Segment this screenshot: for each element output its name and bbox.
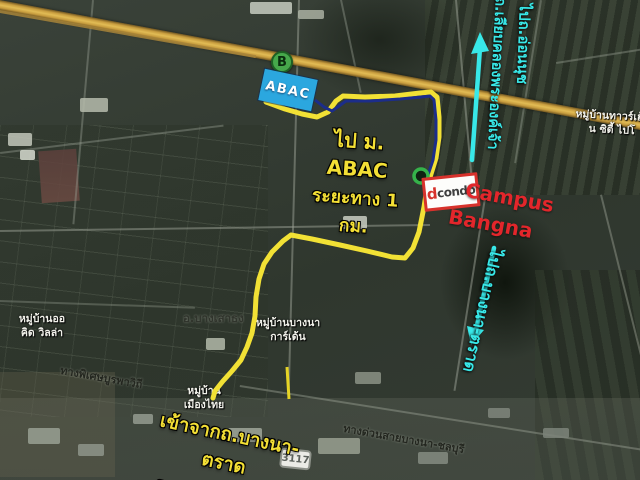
abac-box-label: ABAC [264,78,312,102]
yellow-connector-line [287,367,289,399]
arrow-up-shaft [472,48,480,160]
marker-b-letter: B [277,55,287,70]
note-to-abac-line1: ไป ม. ABAC [299,121,418,185]
satellite-map: ทางพิเศษบูรพาวิถี ทางด่วนสายบางนา-ชลบุรี… [0,0,640,480]
marker-b: B [271,51,293,73]
note-to-abac-line2: ระยะทาง 1 กม. [295,180,414,244]
note-to-abac: ไป ม. ABAC ระยะทาง 1 กม. [295,121,418,244]
direction-to-onnut-label: ไปถ.อ่อนนุช [510,3,537,84]
